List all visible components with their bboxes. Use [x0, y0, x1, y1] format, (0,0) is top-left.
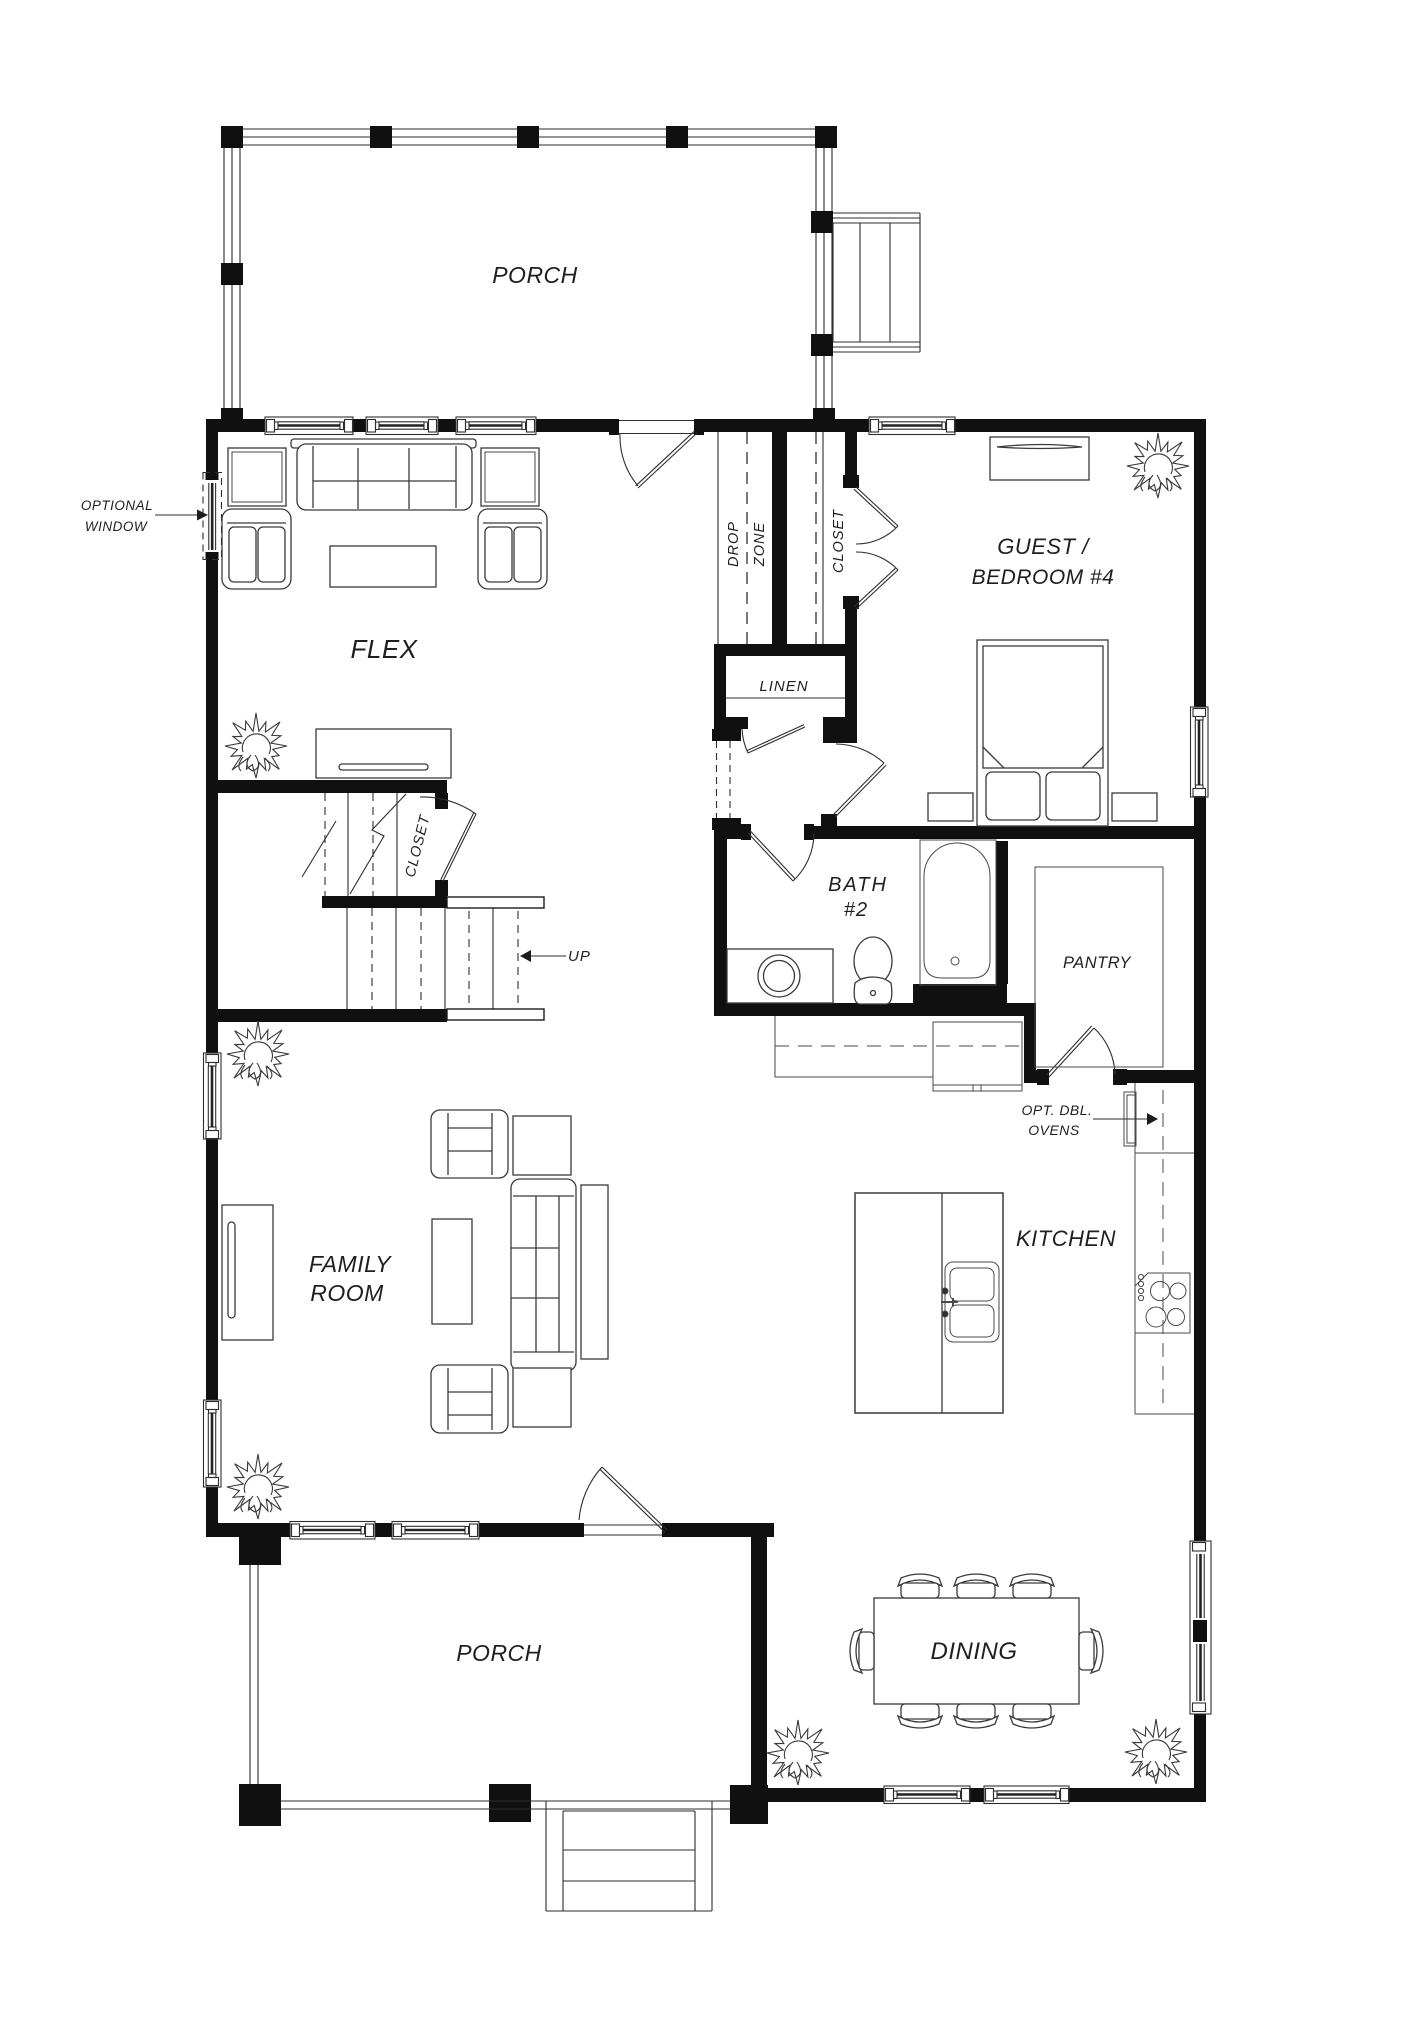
svg-text:DINING: DINING	[931, 1638, 1018, 1665]
svg-text:OPT. DBL.: OPT. DBL.	[1022, 1102, 1093, 1118]
svg-text:ZONE: ZONE	[752, 522, 768, 567]
svg-text:FLEX: FLEX	[350, 634, 418, 664]
svg-text:WINDOW: WINDOW	[85, 519, 148, 534]
svg-text:ROOM: ROOM	[310, 1280, 384, 1306]
svg-text:LINEN: LINEN	[759, 678, 808, 695]
svg-text:OPTIONAL: OPTIONAL	[81, 498, 153, 513]
svg-text:KITCHEN: KITCHEN	[1016, 1226, 1116, 1251]
svg-text:OVENS: OVENS	[1028, 1122, 1080, 1138]
svg-text:PORCH: PORCH	[492, 262, 578, 288]
svg-text:DROP: DROP	[726, 521, 742, 567]
svg-text:FAMILY: FAMILY	[309, 1251, 392, 1277]
svg-text:PORCH: PORCH	[456, 1640, 542, 1666]
svg-text:PANTRY: PANTRY	[1063, 954, 1132, 972]
svg-text:BATH: BATH	[828, 874, 888, 896]
svg-text:#2: #2	[844, 899, 868, 921]
svg-text:GUEST /: GUEST /	[997, 534, 1090, 559]
svg-text:BEDROOM #4: BEDROOM #4	[972, 566, 1115, 589]
svg-text:UP: UP	[568, 948, 591, 965]
svg-text:CLOSET: CLOSET	[831, 509, 847, 573]
